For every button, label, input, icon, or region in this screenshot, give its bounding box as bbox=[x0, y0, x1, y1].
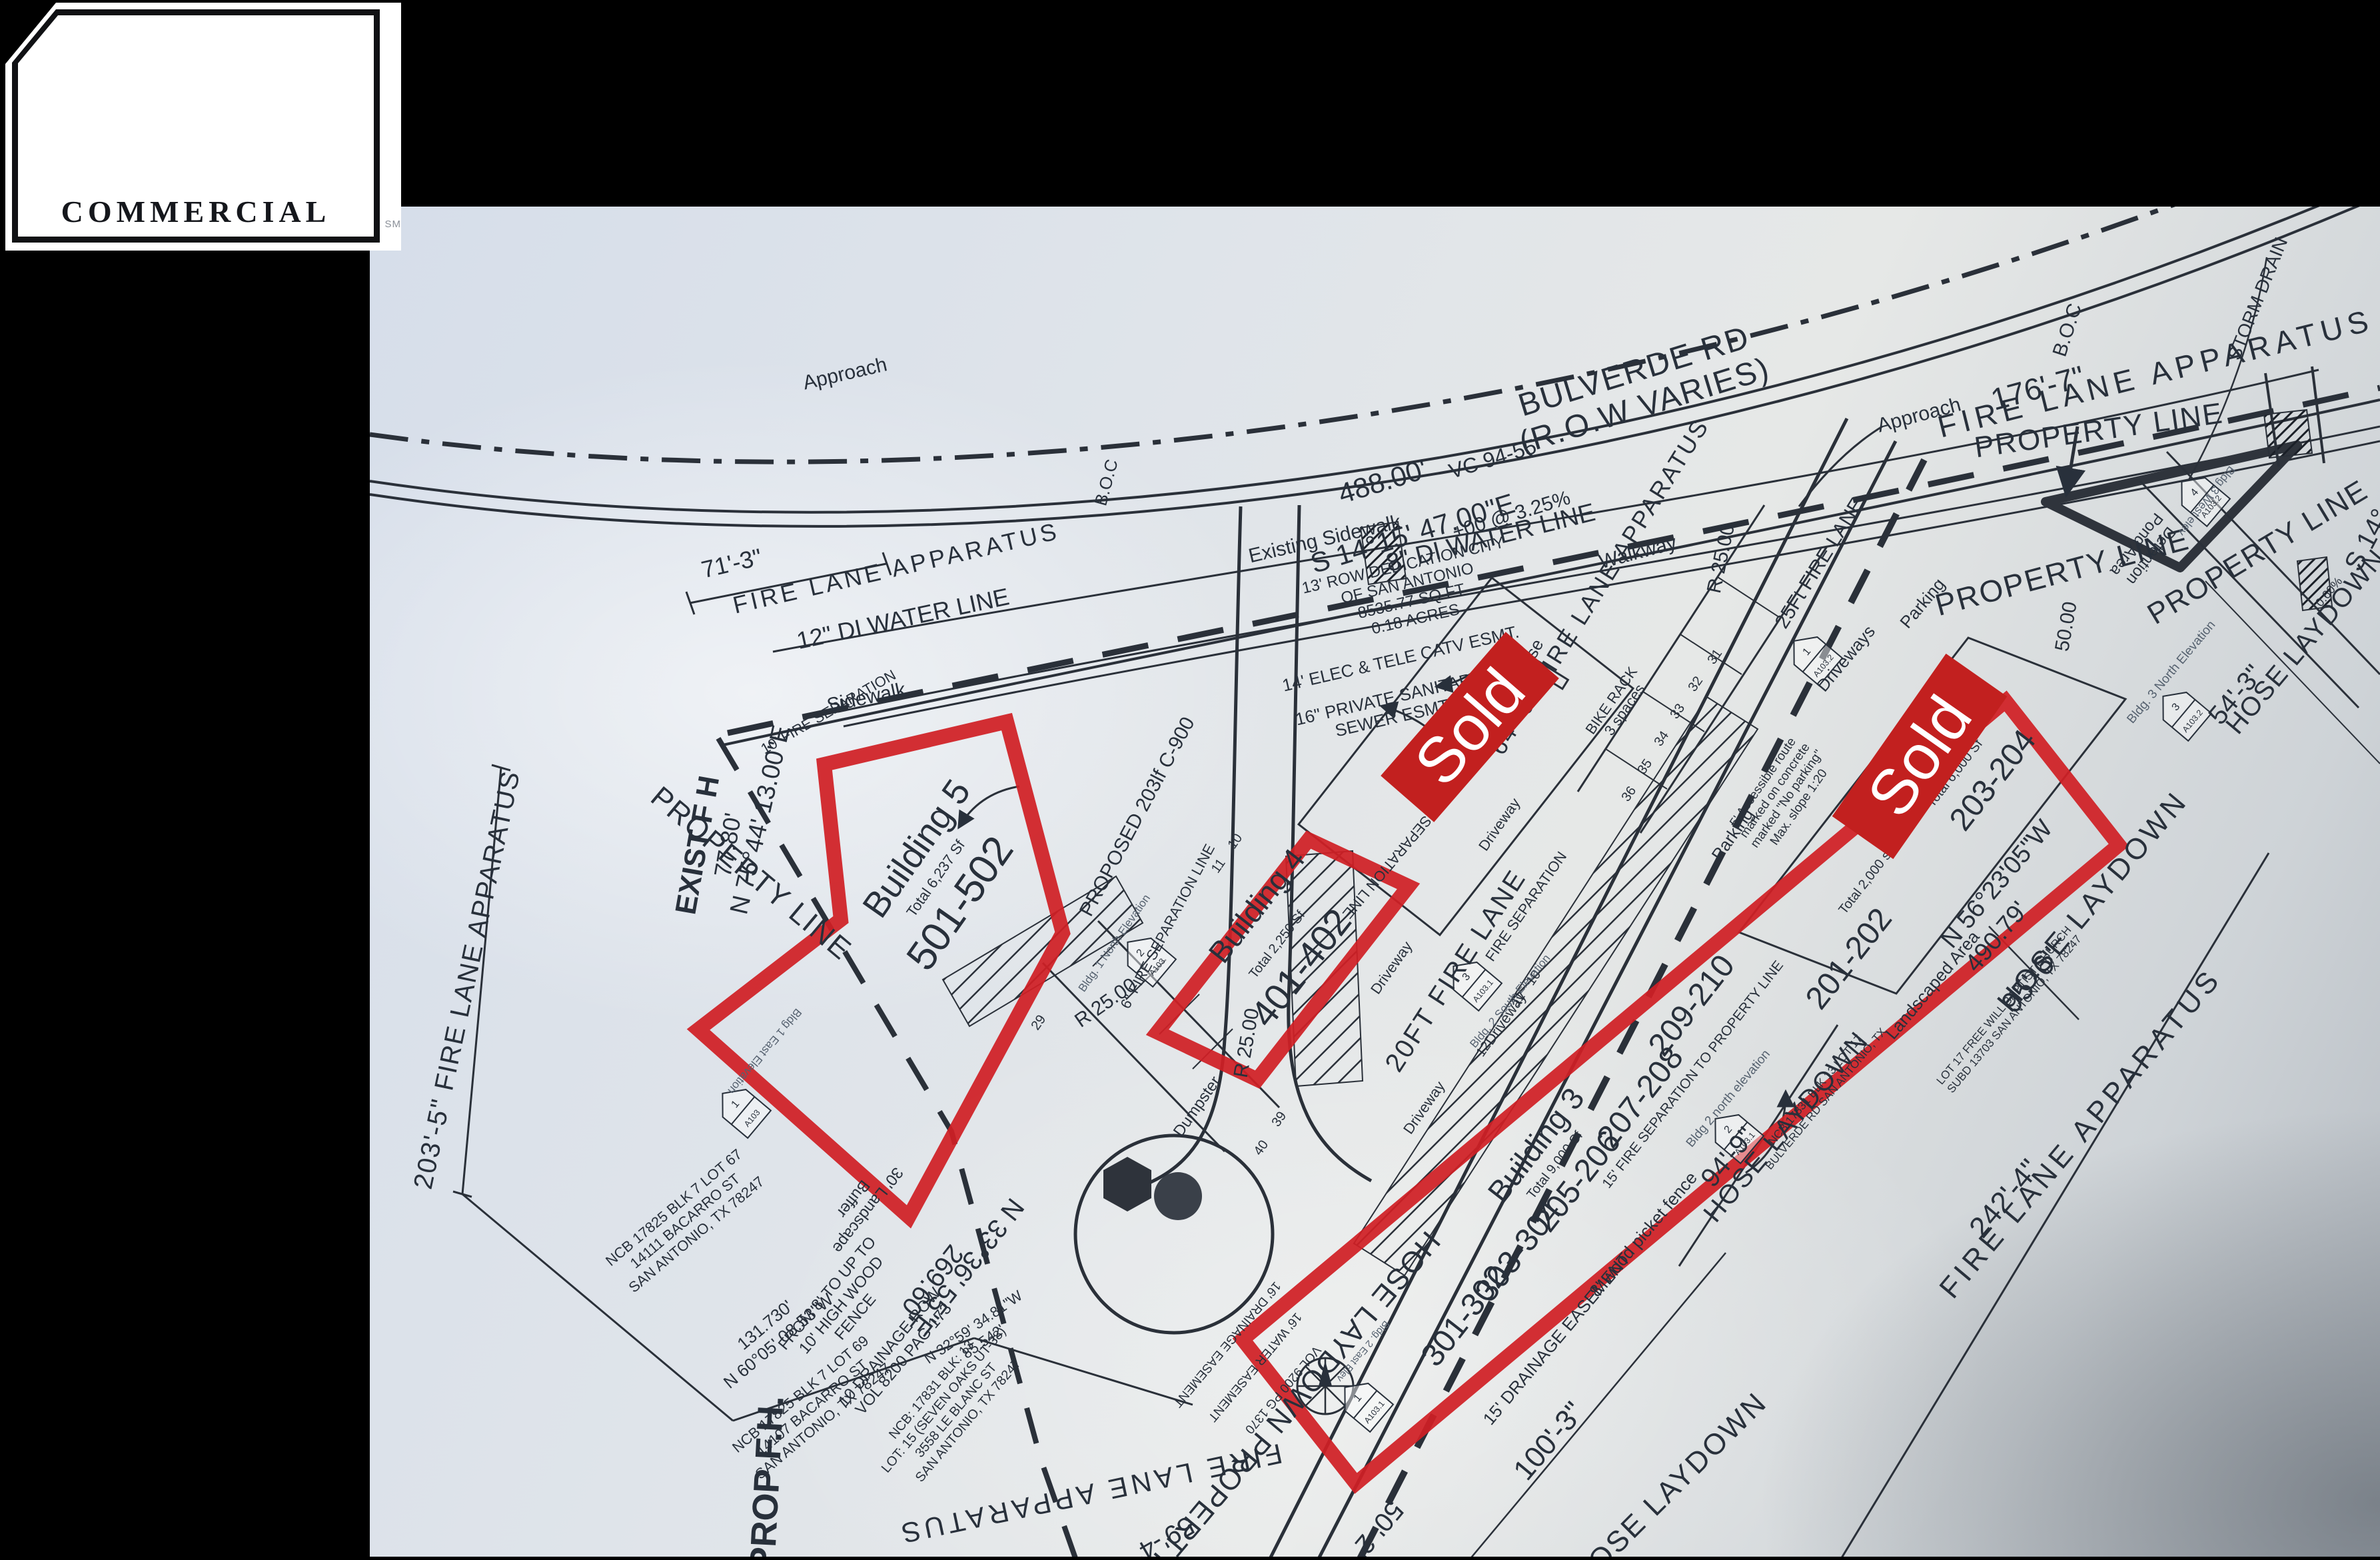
site-plan-photo: 1A1032A1033A103.12A103.11A103.23A103.24A… bbox=[370, 207, 2380, 1557]
plan-label: FIRE LANE APPARATUS bbox=[730, 517, 1062, 619]
plan-label: 201-202 bbox=[1799, 902, 1899, 1016]
plan-label: 488.00' bbox=[1335, 453, 1431, 510]
plan-label: 50'-2" bbox=[1343, 1495, 1409, 1557]
plan-label: 8' wood picket fence bbox=[1585, 1168, 1701, 1300]
plan-label: Approach bbox=[801, 353, 890, 394]
plan-label: Total 2,000 sf bbox=[1836, 846, 1896, 918]
kw-commercial-logo: KW COMMERCIAL SM bbox=[5, 3, 401, 251]
plan-label: B.O.C bbox=[2049, 301, 2087, 359]
plan-label: 71'-3" bbox=[699, 543, 765, 584]
logo-inner: KW COMMERCIAL bbox=[18, 15, 374, 237]
kw-wordmark: COMMERCIAL bbox=[18, 194, 374, 229]
plan-label: Dumpster bbox=[1170, 1073, 1225, 1140]
plan-label: FIRE LANE APPARATUS bbox=[1933, 962, 2228, 1304]
plan-label: 100'-3" bbox=[1507, 1396, 1590, 1487]
plan-label: NCB 17825 BLK 7 LOT 6714111 BACARRO STSA… bbox=[602, 1146, 768, 1296]
plan-label: HOSE LAYDOWN bbox=[1566, 1386, 1774, 1557]
plan-label: Landscaped Area bbox=[1882, 926, 1984, 1043]
flyer-canvas: { "logo": { "monogram": "KW", "wordmark"… bbox=[0, 0, 2380, 1560]
plan-label: 40 bbox=[1251, 1138, 1271, 1158]
kw-red-slab: KW bbox=[46, 45, 347, 183]
logo-frame: KW COMMERCIAL bbox=[12, 9, 380, 243]
kw-monogram: KW bbox=[93, 71, 300, 181]
plan-label: 29 bbox=[1028, 1012, 1049, 1033]
plan-label: BIKE RACK3 spaces bbox=[1582, 664, 1654, 747]
plan-label: 36 bbox=[1618, 784, 1639, 804]
plan-label: Driveway bbox=[1367, 938, 1415, 997]
plan-label: 34 bbox=[1651, 728, 1672, 749]
plan-label: 32 bbox=[1685, 674, 1706, 694]
plan-label: 10 bbox=[1225, 831, 1245, 852]
plan-label: PROP F.H. bbox=[742, 1395, 792, 1557]
sold-badge: Sold bbox=[1832, 654, 2008, 859]
plan-label: VC 94-55 bbox=[1446, 434, 1539, 483]
plan-label: 50.00 bbox=[2051, 600, 2082, 653]
service-mark: SM bbox=[385, 219, 402, 230]
plan-label: 35 bbox=[1634, 756, 1655, 777]
plan-label: Driveway bbox=[1475, 795, 1523, 854]
plan-label: 203'-5" FIRE LANE APPARATUS bbox=[408, 768, 526, 1191]
plan-label: BULVERDE RD(R.O.W VARIES) bbox=[1504, 317, 1774, 460]
site-plan-drawing: 1A1032A1033A103.12A103.11A103.23A103.24A… bbox=[370, 207, 2380, 1557]
plan-label: 39 bbox=[1269, 1109, 1289, 1130]
